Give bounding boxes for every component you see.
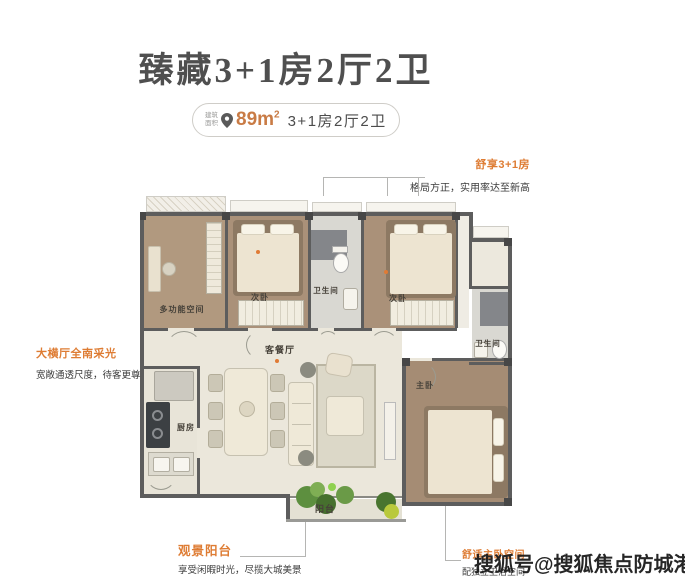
pillow — [270, 224, 294, 235]
sink-basin — [173, 457, 190, 472]
burner — [152, 410, 163, 421]
annotation-balcony-title: 观景阳台 — [178, 540, 232, 559]
mattress — [237, 233, 299, 292]
dining-chair — [270, 402, 285, 420]
area-badge: 建筑 面积 89m2 3+1房2厅2卫 — [192, 103, 400, 137]
toilet-tank — [332, 246, 348, 253]
floorplan-poster: 臻藏3+1房2厅2卫 建筑 面积 89m2 3+1房2厅2卫 舒享3+1房 格局… — [0, 0, 685, 580]
mattress — [390, 233, 452, 294]
floorplan: 多功能空间 次卧 卫生间 次卧 卫生间 客餐厅 厨房 主卧 阳台 — [140, 196, 512, 528]
wall — [197, 366, 200, 428]
burner — [152, 428, 163, 439]
anchor-dot — [256, 250, 260, 254]
wall — [361, 216, 364, 328]
tv-cabinet — [384, 402, 396, 460]
wall — [144, 366, 198, 369]
wall — [140, 494, 290, 498]
wardrobe — [238, 300, 304, 326]
door-arc — [166, 331, 202, 367]
door-arc — [370, 331, 398, 359]
room-label-kitchen: 厨房 — [166, 422, 206, 433]
dining-table — [224, 368, 268, 456]
fridge — [154, 371, 194, 401]
pillow — [394, 224, 418, 235]
window-strip — [312, 202, 362, 212]
sofa-cushion-line — [292, 424, 311, 425]
page-title: 臻藏3+1房2厅2卫 — [0, 42, 572, 93]
column — [305, 212, 313, 220]
window-strip — [230, 200, 308, 212]
annotation-living-desc: 宽敞通透尺度，待客更尊崇 — [36, 367, 150, 381]
dining-chair — [208, 430, 223, 448]
area-caption: 建筑 面积 — [205, 112, 218, 128]
room-label-balcony: 阳台 — [304, 502, 346, 515]
room-label-bathroom1: 卫生间 — [303, 285, 349, 296]
column — [222, 212, 230, 220]
window-strip — [366, 202, 456, 212]
duct — [458, 216, 469, 328]
dining-chair — [208, 402, 223, 420]
connector-line — [323, 177, 425, 178]
anchor-dot — [275, 359, 279, 363]
wall — [469, 242, 472, 289]
hallway-floor — [472, 242, 508, 288]
chair — [162, 262, 176, 276]
area-value: 89m2 — [236, 109, 280, 131]
wall — [308, 216, 311, 328]
floor-lamp — [300, 362, 316, 378]
column — [452, 212, 460, 220]
wall — [469, 286, 512, 289]
column — [504, 238, 512, 246]
column — [504, 498, 512, 506]
coffee-table — [326, 396, 364, 436]
location-pin-icon — [221, 113, 233, 128]
floor-lamp — [298, 450, 314, 466]
dining-chair — [208, 374, 223, 392]
layout-spec: 3+1房2厅2卫 — [288, 110, 387, 131]
pillow — [493, 454, 504, 482]
mattress — [428, 410, 492, 494]
annotation-living-title: 大横厅全南采光 — [36, 345, 117, 361]
double-bed — [386, 220, 456, 298]
connector-line — [323, 177, 324, 196]
anchor-dot — [384, 270, 388, 274]
room-label-bedroom2: 次卧 — [240, 292, 280, 303]
door-opening — [408, 358, 432, 361]
column — [402, 358, 410, 366]
shelf — [206, 222, 222, 294]
pillow — [493, 418, 504, 446]
watermark: 搜狐号@搜狐焦点防城港站 — [474, 548, 685, 577]
bay-window — [146, 196, 226, 212]
connector-line — [387, 177, 388, 196]
double-bed — [233, 220, 303, 296]
toilet — [333, 253, 349, 273]
column — [358, 212, 366, 220]
window-strip — [473, 226, 509, 238]
plant — [384, 504, 399, 519]
column — [140, 212, 146, 220]
pillow — [423, 224, 447, 235]
door-arc — [146, 460, 176, 490]
annotation-balcony-desc: 享受闲暇时光，尽揽大城美景 — [178, 562, 302, 576]
room-label-multifunction: 多功能空间 — [142, 304, 222, 315]
column — [504, 358, 512, 366]
balcony-rail — [286, 519, 406, 522]
wall — [402, 502, 512, 506]
annotation-3plus1-desc: 格局方正，实用率达至新高 — [380, 179, 530, 194]
door-arc — [318, 331, 338, 351]
room-label-living: 客餐厅 — [250, 343, 310, 356]
pillow — [241, 224, 265, 235]
wall — [197, 458, 200, 498]
connector-line — [240, 556, 306, 557]
armchair — [324, 352, 353, 378]
room-label-bathroom2: 卫生间 — [466, 338, 510, 349]
wall — [140, 212, 144, 498]
annotation-3plus1-title: 舒享3+1房 — [400, 156, 530, 172]
plant — [328, 483, 336, 491]
master-bed — [424, 406, 508, 498]
connector-line — [445, 560, 461, 561]
sofa-cushion-line — [292, 445, 311, 446]
dining-chair — [270, 374, 285, 392]
shower-tile — [480, 292, 508, 326]
room-label-master: 主卧 — [404, 380, 446, 391]
centerpiece — [239, 401, 255, 417]
sofa-cushion-line — [292, 403, 311, 404]
connector-line — [418, 177, 419, 196]
room-label-bedroom3: 次卧 — [378, 293, 418, 304]
dining-chair — [270, 430, 285, 448]
wall — [508, 238, 512, 506]
wall — [225, 216, 228, 328]
desk — [148, 246, 161, 292]
